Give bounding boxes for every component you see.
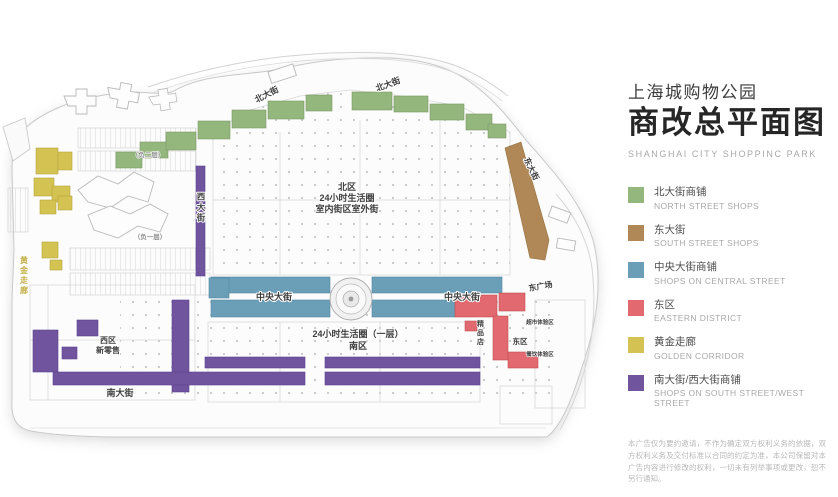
legend-label-zh: 南大街/西大街商铺: [654, 374, 830, 386]
legend-item-north-street: 北大街商铺 NORTH STREET SHOPS: [628, 186, 830, 211]
legend-swatch-south-west-street: [628, 375, 644, 391]
legend-label-zh: 黄金走廊: [654, 336, 745, 348]
label-west-street: 西大街: [196, 192, 206, 224]
legend-label-zh: 北大街商铺: [654, 186, 759, 198]
label-central-street-east: 中央大街: [444, 291, 480, 302]
legend-label-en: NORTH STREET SHOPS: [654, 201, 759, 211]
label-central-street-west: 中央大街: [256, 291, 292, 302]
info-panel: 上海城购物公园 商改总平面图 SHANGHAI CITY SHOPPINC PA…: [628, 78, 830, 485]
legend: 北大街商铺 NORTH STREET SHOPS 东大街 SOUTH STREE…: [628, 186, 830, 408]
legend-item-golden-corridor: 黄金走廊 GOLDEN CORRIDOR: [628, 336, 830, 361]
legend-label-zh: 中央大街商铺: [654, 261, 786, 273]
label-south-street: 南大街: [106, 387, 133, 398]
label-west-zone-2: 新零售: [96, 345, 120, 355]
label-parking-b2: （负二层）: [132, 150, 165, 159]
label-east-zone: 东区: [513, 336, 528, 346]
page-title-en: SHANGHAI CITY SHOPPINC PARK: [628, 149, 830, 159]
label-west-zone-1: 西区: [100, 336, 116, 345]
legend-label-en: SOUTH STREET SHOPS: [654, 238, 759, 248]
legend-label-en: EASTERN DISTRICT: [654, 313, 742, 323]
legend-label-zh: 东区: [654, 299, 742, 311]
label-parking-b1: （负一层）: [134, 232, 167, 241]
label-north-zone-3: 室内街区室外街: [315, 203, 378, 214]
label-south-zone-2: 南区: [349, 340, 367, 351]
legend-swatch-east-street: [628, 225, 644, 241]
label-golden-corridor: 黄金走廊: [19, 255, 29, 296]
project-name: 上海城购物公园: [628, 78, 830, 103]
label-exp-area-2: 餐饮体验区: [525, 350, 554, 358]
legend-label-en: SHOPS ON SOUTH STREET/WEST STREET: [654, 388, 830, 408]
legend-label-en: GOLDEN CORRIDOR: [654, 351, 745, 361]
legend-swatch-central-street: [628, 262, 644, 278]
legend-swatch-north-street: [628, 187, 644, 203]
label-south-zone-1: 24小时生活圈（一层）: [312, 328, 403, 339]
legend-item-east-street: 东大街 SOUTH STREET SHOPS: [628, 224, 830, 249]
legend-swatch-golden-corridor: [628, 337, 644, 353]
legend-item-central-street: 中央大街商铺 SHOPS ON CENTRAL STREET: [628, 261, 830, 286]
label-north-zone-1: 北区: [338, 181, 356, 192]
site-plan-map: 北大街 北大街 东大街 中央大街 中央大街 西大街 南大街 东广场 黄金走廊 北…: [0, 0, 620, 497]
label-boutique: 精品店: [477, 319, 485, 347]
legend-item-south-west-street: 南大街/西大街商铺 SHOPS ON SOUTH STREET/WEST STR…: [628, 374, 830, 409]
label-north-zone-2: 24小时生活圈: [319, 192, 374, 203]
central-plaza: [330, 278, 372, 320]
legend-item-eastern-district: 东区 EASTERN DISTRICT: [628, 299, 830, 324]
legend-label-zh: 东大街: [654, 224, 759, 236]
label-exp-area-1: 超市体验区: [525, 318, 554, 326]
disclaimer-text: 本广告仅为要约邀请，不作为确定双方权利义务的依据，双方权利义务及交付标准以合同的…: [628, 438, 826, 485]
legend-label-en: SHOPS ON CENTRAL STREET: [654, 276, 786, 286]
legend-swatch-eastern-district: [628, 300, 644, 316]
page-title: 商改总平面图: [628, 106, 830, 140]
page: 北大街 北大街 东大街 中央大街 中央大街 西大街 南大街 东广场 黄金走廊 北…: [0, 0, 838, 497]
